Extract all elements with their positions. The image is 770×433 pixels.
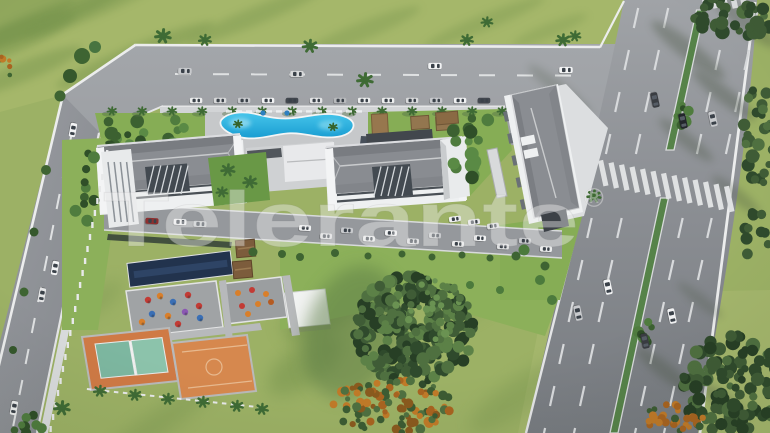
svg-text:®: ® xyxy=(584,183,604,213)
svg-text:Telerante: Telerante xyxy=(103,175,579,263)
